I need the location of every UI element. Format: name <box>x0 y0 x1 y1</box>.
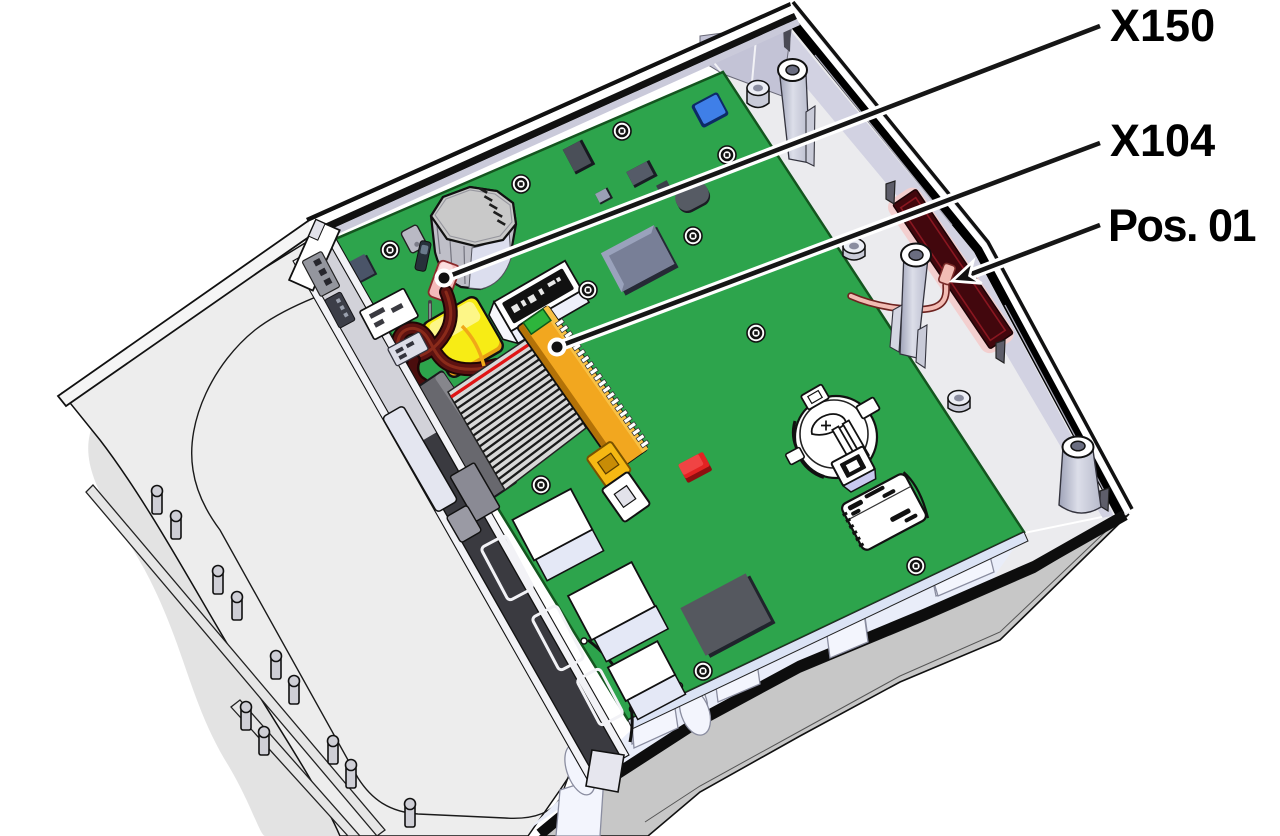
svg-text:X150: X150 <box>1110 0 1215 51</box>
svg-text:Pos. 01: Pos. 01 <box>1108 200 1256 251</box>
svg-text:X104: X104 <box>1110 115 1215 166</box>
